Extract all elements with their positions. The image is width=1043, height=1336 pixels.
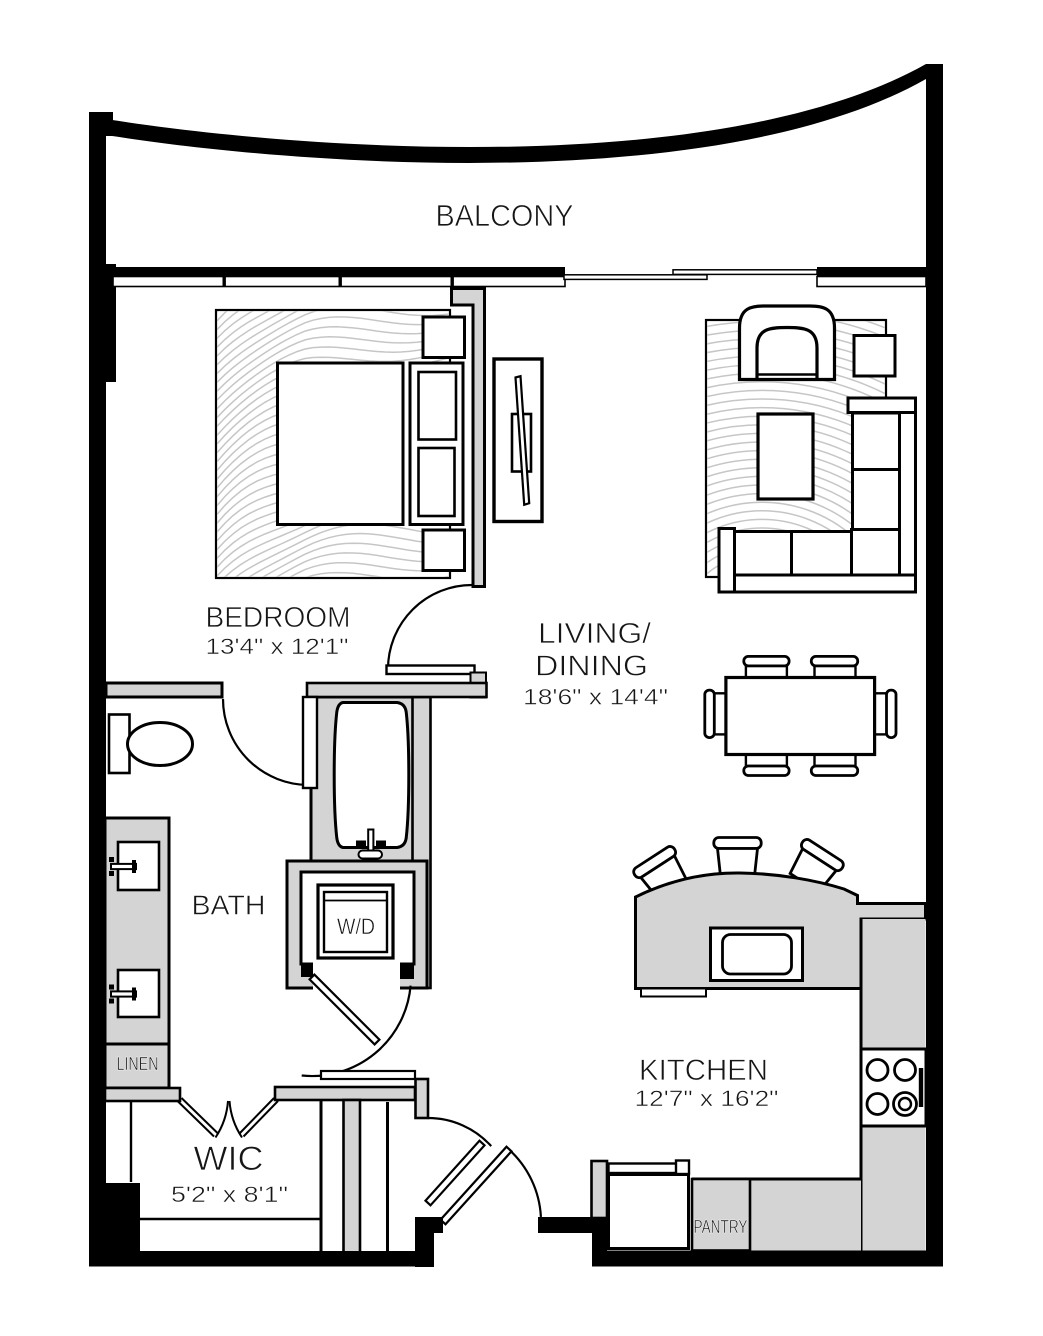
svg-text:LIVING/: LIVING/ bbox=[538, 618, 652, 650]
svg-text:5'2" x 8'1": 5'2" x 8'1" bbox=[171, 1182, 288, 1207]
svg-text:W/D: W/D bbox=[337, 914, 375, 939]
svg-text:DINING: DINING bbox=[535, 651, 648, 683]
svg-text:BALCONY: BALCONY bbox=[436, 198, 574, 233]
svg-text:KITCHEN: KITCHEN bbox=[639, 1054, 768, 1087]
svg-text:BEDROOM: BEDROOM bbox=[206, 602, 351, 634]
svg-text:PANTRY: PANTRY bbox=[694, 1217, 748, 1237]
svg-text:13'4" x 12'1": 13'4" x 12'1" bbox=[206, 634, 349, 659]
svg-text:BATH: BATH bbox=[192, 890, 266, 921]
svg-text:WIC: WIC bbox=[194, 1140, 264, 1178]
svg-text:LINEN: LINEN bbox=[117, 1053, 159, 1074]
svg-text:18'6" x 14'4": 18'6" x 14'4" bbox=[523, 685, 668, 710]
svg-text:12'7" x 16'2": 12'7" x 16'2" bbox=[635, 1086, 779, 1111]
